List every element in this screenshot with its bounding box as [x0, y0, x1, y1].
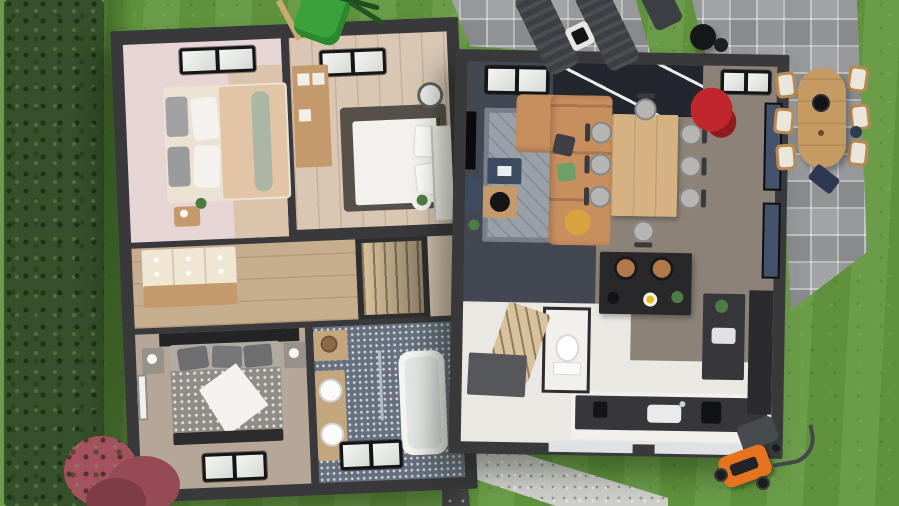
- skylight-pane: [724, 73, 744, 91]
- storage-box: [299, 109, 311, 121]
- chair-cushion: [850, 142, 866, 163]
- nightstand: [174, 206, 201, 227]
- lawn-mower: [712, 414, 822, 506]
- serving-bowl: [812, 94, 830, 112]
- skylight-pane: [182, 50, 216, 71]
- outdoor-chair: [846, 65, 869, 94]
- pillow: [177, 345, 210, 371]
- toilet-tank: [553, 362, 581, 375]
- plant: [195, 198, 206, 209]
- chair-cushion: [850, 68, 867, 90]
- door-divider: [203, 248, 207, 284]
- knob: [218, 269, 223, 274]
- hallway: [131, 239, 358, 328]
- black-tray: [490, 192, 510, 212]
- mower-wheel: [714, 468, 728, 482]
- side-counter: [702, 293, 745, 380]
- chair-back: [584, 187, 589, 205]
- faucet: [679, 401, 685, 407]
- chair-cushion: [778, 74, 794, 95]
- wall-tv: [465, 111, 476, 169]
- skylight-pane: [373, 443, 400, 466]
- white-wardrobe: [431, 125, 455, 220]
- bar-stool: [614, 256, 638, 280]
- bathtub-basin: [404, 356, 442, 449]
- knob: [186, 256, 191, 261]
- bathroom-skylight: [340, 440, 403, 471]
- flower-bush: [64, 428, 194, 506]
- outdoor-chair: [847, 139, 870, 167]
- barbecue-grill: [690, 24, 716, 50]
- media-unit: [465, 177, 482, 211]
- pillow: [167, 146, 191, 187]
- lemons: [646, 295, 654, 303]
- bathtub: [398, 350, 448, 456]
- mower-wheel: [770, 442, 782, 454]
- side-window: [762, 203, 781, 279]
- navy-stool: [850, 126, 862, 138]
- outdoor-chair: [775, 71, 798, 99]
- outdoor-chair: [775, 143, 797, 170]
- storage-box: [312, 73, 324, 85]
- staircase-upper: [355, 236, 430, 319]
- bar-stool: [650, 257, 674, 281]
- chair-back: [701, 157, 706, 175]
- kitchen-sink: [647, 405, 681, 424]
- sink: [318, 378, 343, 403]
- chair-cushion: [852, 106, 868, 127]
- glass-screen: [378, 350, 384, 420]
- skylight-pane: [343, 444, 370, 467]
- hall-sideboard: [141, 246, 237, 308]
- wall-art: [137, 374, 149, 420]
- bed-pink-room: [163, 82, 292, 203]
- tall-cabinet: [747, 290, 773, 414]
- pillow: [165, 96, 189, 137]
- sideboard-wood-drawer: [143, 282, 238, 308]
- mower-engine: [729, 456, 759, 477]
- plant: [671, 291, 683, 303]
- green-pillow: [556, 162, 576, 182]
- bedroom-gray-skylight: [202, 451, 267, 482]
- door-divider: [171, 249, 175, 285]
- plant: [715, 300, 728, 313]
- tray: [571, 27, 590, 46]
- rear-window: [549, 441, 633, 453]
- chair-back: [701, 189, 706, 207]
- knob: [218, 255, 223, 260]
- grill-side-bowl: [714, 38, 728, 52]
- room-bedroom-beige: [289, 31, 455, 229]
- house-right-block: [449, 49, 790, 459]
- stair-shading: [361, 241, 424, 315]
- table-knot: [818, 130, 824, 136]
- skylight-pane: [219, 49, 253, 70]
- skylight-pane: [236, 454, 264, 477]
- bedroom-beige-skylight: [319, 48, 386, 77]
- chair-back: [585, 123, 590, 141]
- knob: [186, 270, 191, 275]
- chair-cushion: [778, 147, 793, 168]
- mower-wheel: [756, 476, 770, 490]
- chair-back: [584, 155, 589, 173]
- small-appliance: [593, 402, 607, 418]
- room-bathroom: [313, 321, 465, 483]
- garden-scene: [0, 0, 899, 506]
- knob: [154, 258, 159, 263]
- pillow: [212, 345, 243, 368]
- kettle: [607, 292, 619, 304]
- knob: [154, 272, 159, 277]
- skylight-pane: [488, 69, 515, 91]
- pillow: [190, 96, 221, 141]
- coffee-table: [483, 186, 518, 219]
- bedroom-pink-skylight: [179, 45, 256, 74]
- doormat: [467, 352, 527, 397]
- dining-skylight: [721, 70, 771, 95]
- chair-cushion: [776, 110, 792, 131]
- chair-back: [637, 93, 655, 98]
- skylight-pane: [519, 69, 546, 91]
- kitchen-island: [599, 252, 692, 316]
- tray-card: [497, 166, 511, 176]
- toilet-bowl: [555, 334, 579, 362]
- skylight-pane: [205, 456, 233, 479]
- outdoor-dining-table: [798, 68, 846, 168]
- outdoor-chair: [773, 107, 795, 135]
- prep-sink: [711, 328, 735, 344]
- pillow: [194, 145, 220, 187]
- navy-side-table: [487, 158, 521, 185]
- room-bedroom-pink: [123, 38, 289, 242]
- shelving-unit: [292, 64, 332, 167]
- living-skylight: [485, 66, 549, 95]
- skylight-pane: [748, 73, 768, 91]
- dining-table: [611, 114, 679, 217]
- skylight-pane: [354, 51, 383, 72]
- chair-back: [634, 242, 652, 247]
- storage-box: [297, 73, 309, 85]
- pillow: [243, 343, 273, 368]
